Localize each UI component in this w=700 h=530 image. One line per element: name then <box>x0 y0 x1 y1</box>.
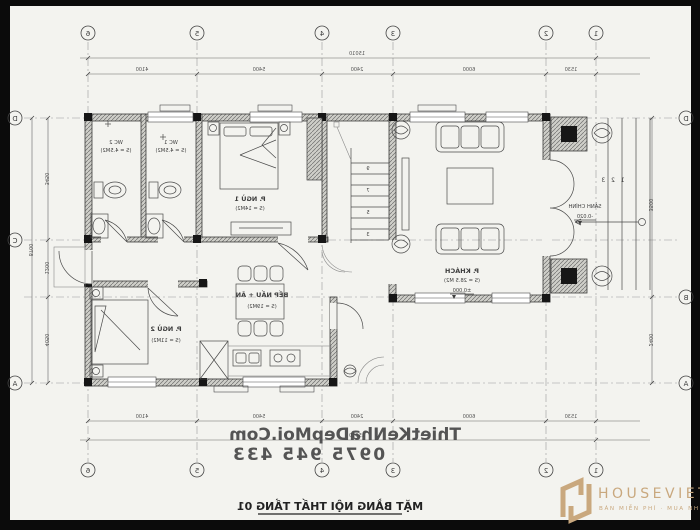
svg-text:4: 4 <box>319 467 324 475</box>
room-elev-porch: -0.020 <box>577 214 593 220</box>
dim-top-seg-0: 4100 <box>136 67 149 73</box>
svg-text:A: A <box>12 380 17 388</box>
svg-text:A: A <box>683 380 688 388</box>
dim-left-seg-2: 4050 <box>43 334 49 347</box>
watermark-phone: 0975 945 433 <box>231 445 385 465</box>
watermark-site: ThietKeNhaDepMoi.Com <box>229 425 461 445</box>
svg-text:4: 4 <box>319 30 324 38</box>
screenshot-frame: 15010 4100 5400 2400 6000 1530 4100 5400… <box>0 0 700 530</box>
dim-bot-seg-1: 5400 <box>253 414 266 420</box>
bed1-wardrobe <box>307 118 322 180</box>
dim-bot-seg-0: 4100 <box>136 414 149 420</box>
dim-top-seg-1: 5400 <box>253 67 266 73</box>
room-area-living: (S = 28.5 M2) <box>444 278 480 284</box>
drawing-title: MẶT BẰNG NỘI THẤT TẦNG 01 <box>237 498 423 514</box>
dim-top-overall: 15010 <box>349 51 365 57</box>
room-label-wc2: WC 2 <box>109 140 123 146</box>
svg-text:6: 6 <box>85 30 90 38</box>
dim-top-seg-4: 1530 <box>565 67 578 73</box>
svg-text:C: C <box>12 237 17 245</box>
main-door-opening <box>542 160 551 256</box>
wc1-door-opening <box>158 236 184 243</box>
svg-text:2: 2 <box>544 30 548 38</box>
dim-bot-seg-3: 6000 <box>463 414 476 420</box>
dim-bot-seg-2: 2400 <box>351 414 364 420</box>
dim-top-seg-3: 6000 <box>463 67 476 73</box>
svg-text:D: D <box>12 115 17 123</box>
svg-text:1: 1 <box>594 467 598 475</box>
dim-right-seg-1: 2400 <box>647 334 653 347</box>
stair-tread-7: 7 <box>366 188 369 194</box>
room-area-wc1: (S = 4.5M2) <box>155 148 186 154</box>
room-label-bed2: P. NGỦ 2 <box>150 323 181 333</box>
dim-left-seg-1: 1200 <box>43 262 49 275</box>
room-label-living: P. KHÁCH <box>445 266 479 275</box>
houseviet-logo-text: HOUSEVIET <box>598 486 700 502</box>
room-label-kitchen: BẾP NẤU + ĂN <box>236 289 289 299</box>
svg-text:6: 6 <box>85 467 90 475</box>
dim-top-seg-2: 2400 <box>351 67 364 73</box>
room-elev-living: ±0.000 <box>453 288 472 294</box>
room-area-bed1: (S = 14M2) <box>235 206 264 212</box>
drawing-title-text: MẶT BẰNG NỘI THẤT TẦNG 01 <box>237 498 423 513</box>
svg-text:1: 1 <box>594 30 598 38</box>
houseviet-logo-tagline: BÁN MIỄN PHÍ · MUA NHƯ Ý <box>599 504 700 512</box>
room-label-bed1: P. NGỦ 1 <box>234 193 266 203</box>
svg-text:B: B <box>683 294 688 302</box>
stair-tread-9: 9 <box>366 166 369 172</box>
svg-text:D: D <box>683 115 688 123</box>
dim-left-seg-0: 3450 <box>43 173 49 186</box>
svg-text:5: 5 <box>195 467 199 475</box>
dim-left-overall: 8700 <box>27 244 33 257</box>
dim-bot-seg-4: 1530 <box>565 414 578 420</box>
room-label-wc1: WC 1 <box>164 140 178 146</box>
room-area-bed2: (S = 11M2) <box>151 338 180 344</box>
stair-tread-5: 5 <box>366 210 369 216</box>
room-area-wc2: (S = 4.5M2) <box>100 148 131 154</box>
room-area-kitchen: (S = 19M2) <box>247 304 276 310</box>
bed1-door-opening <box>278 236 308 243</box>
room-label-porch: SẢNH CHÍNH <box>568 202 601 210</box>
floor-plan-drawing: 15010 4100 5400 2400 6000 1530 4100 5400… <box>0 0 700 530</box>
stair-tread-3: 3 <box>366 232 369 238</box>
svg-text:2: 2 <box>544 467 548 475</box>
bed2-door-opening <box>148 280 178 288</box>
svg-text:3: 3 <box>391 467 395 475</box>
svg-text:3: 3 <box>391 30 395 38</box>
porch-steps-label: 1 2 3 <box>599 177 624 184</box>
svg-text:5: 5 <box>195 30 199 38</box>
wc2-door-opening <box>101 236 127 243</box>
